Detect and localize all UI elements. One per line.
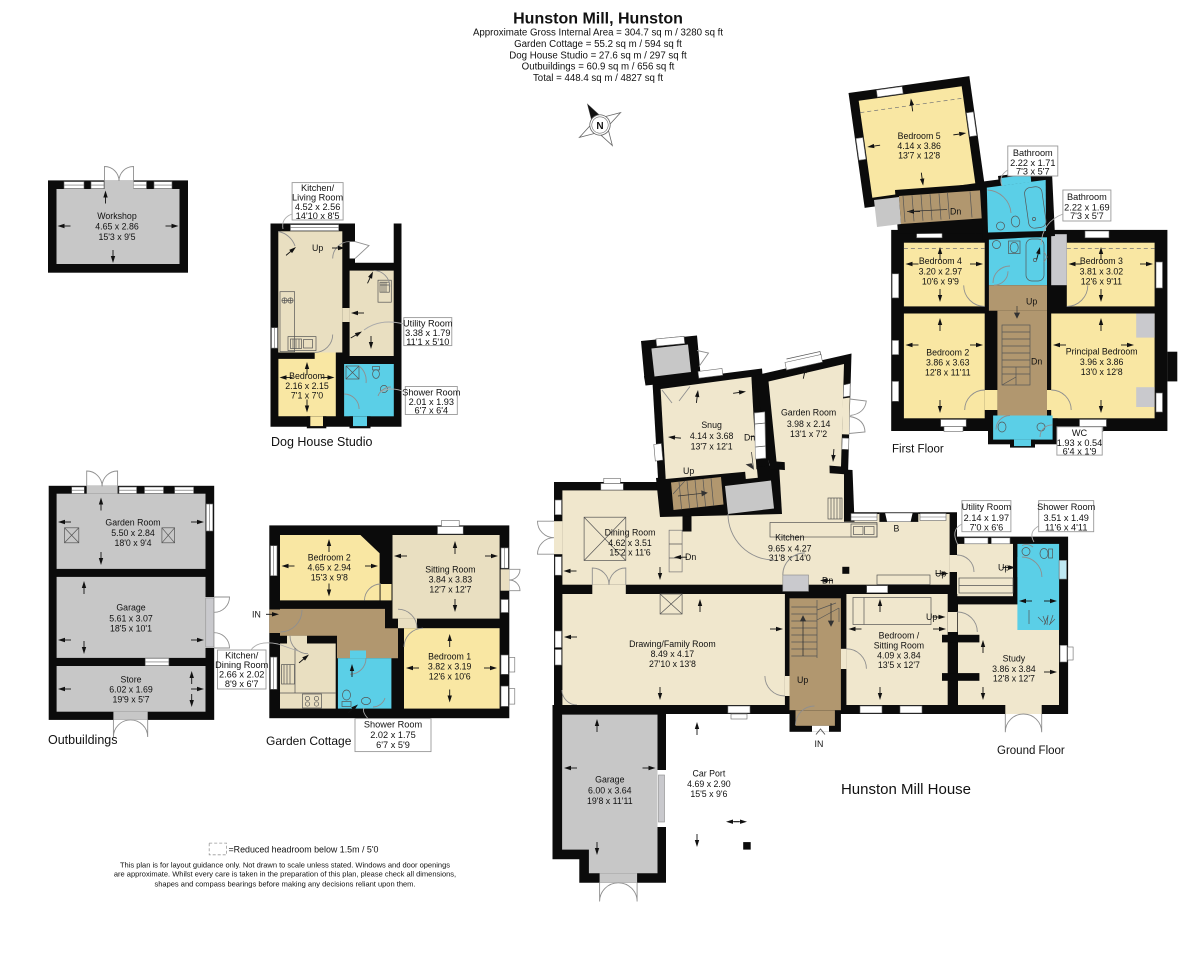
svg-text:Dn: Dn: [744, 433, 755, 443]
svg-text:6'4 x 1'9: 6'4 x 1'9: [1063, 446, 1097, 456]
svg-text:WC: WC: [1072, 428, 1088, 438]
svg-text:2.66 x 2.02: 2.66 x 2.02: [219, 670, 264, 680]
svg-text:Shower Room: Shower Room: [364, 720, 423, 730]
svg-text:18'5 x 10'1: 18'5 x 10'1: [110, 624, 152, 634]
svg-text:5.50 x 2.84: 5.50 x 2.84: [111, 528, 155, 538]
svg-text:13'1 x 7'2: 13'1 x 7'2: [790, 429, 827, 439]
svg-text:7'0 x 6'6: 7'0 x 6'6: [970, 522, 1004, 532]
svg-text:15'3 x 9'5: 15'3 x 9'5: [98, 232, 135, 242]
svg-text:15'2 x 11'6: 15'2 x 11'6: [609, 547, 650, 557]
svg-text:IN: IN: [252, 610, 261, 620]
svg-text:3.82 x 3.19: 3.82 x 3.19: [428, 662, 472, 672]
svg-text:Bedroom 2: Bedroom 2: [308, 553, 351, 563]
svg-text:11'1 x 5'10: 11'1 x 5'10: [406, 337, 449, 347]
svg-text:12'6 x 10'6: 12'6 x 10'6: [429, 672, 471, 682]
svg-text:13'0 x 12'8: 13'0 x 12'8: [1081, 367, 1123, 377]
svg-text:Car Port: Car Port: [693, 769, 726, 779]
svg-text:7'3 x 5'7: 7'3 x 5'7: [1070, 211, 1104, 221]
svg-text:B: B: [894, 524, 900, 534]
svg-text:Ground Floor: Ground Floor: [997, 745, 1065, 757]
svg-text:Up: Up: [312, 243, 323, 253]
svg-text:13'7 x 12'1: 13'7 x 12'1: [691, 441, 733, 451]
svg-text:6.00 x 3.64: 6.00 x 3.64: [588, 786, 632, 796]
svg-text:10'6 x 9'9: 10'6 x 9'9: [922, 276, 959, 286]
svg-text:3.81 x 3.02: 3.81 x 3.02: [1080, 266, 1124, 276]
svg-text:Dn: Dn: [950, 207, 961, 217]
svg-text:18'0 x 9'4: 18'0 x 9'4: [114, 538, 151, 548]
svg-text:Approximate Gross Internal Are: Approximate Gross Internal Area = 304.7 …: [473, 28, 723, 39]
svg-text:2.16 x 2.15: 2.16 x 2.15: [285, 381, 329, 391]
svg-text:4.09 x 3.84: 4.09 x 3.84: [877, 650, 921, 660]
svg-text:Dog House Studio = 27.6 sq m /: Dog House Studio = 27.6 sq m / 297 sq ft: [509, 50, 687, 61]
svg-text:Dog House Studio: Dog House Studio: [271, 435, 373, 449]
svg-text:12'8 x 12'7: 12'8 x 12'7: [993, 673, 1035, 683]
svg-text:Bedroom 3: Bedroom 3: [1080, 256, 1123, 266]
svg-text:3.86 x 3.63: 3.86 x 3.63: [926, 358, 970, 368]
svg-text:Workshop: Workshop: [97, 211, 137, 221]
svg-text:Bedroom 2: Bedroom 2: [926, 348, 969, 358]
svg-text:4.65 x 2.86: 4.65 x 2.86: [95, 222, 139, 232]
svg-text:12'6 x 9'11: 12'6 x 9'11: [1081, 276, 1122, 286]
svg-text:19'9 x 5'7: 19'9 x 5'7: [112, 695, 149, 705]
svg-text:12'7 x 12'7: 12'7 x 12'7: [429, 584, 471, 594]
svg-text:4.14 x 3.68: 4.14 x 3.68: [690, 431, 734, 441]
svg-text:Bedroom: Bedroom: [289, 371, 325, 381]
svg-text:Outbuildings = 60.9 sq m / 656: Outbuildings = 60.9 sq m / 656 sq ft: [522, 62, 675, 73]
svg-text:6'7 x 6'4: 6'7 x 6'4: [414, 406, 448, 416]
svg-text:27'10 x 13'8: 27'10 x 13'8: [649, 659, 696, 669]
svg-text:Sitting Room: Sitting Room: [874, 640, 924, 650]
svg-text:Hunston Mill, Hunston: Hunston Mill, Hunston: [513, 11, 683, 28]
svg-text:This plan is for layout guidan: This plan is for layout guidance only. N…: [120, 860, 450, 869]
svg-text:Bathroom: Bathroom: [1067, 192, 1107, 202]
svg-text:3.98 x 2.14: 3.98 x 2.14: [787, 419, 831, 429]
svg-text:4.65 x 2.94: 4.65 x 2.94: [308, 563, 352, 573]
svg-text:4.69 x 2.90: 4.69 x 2.90: [687, 779, 731, 789]
svg-text:19'8 x 11'11: 19'8 x 11'11: [587, 796, 633, 806]
svg-text:3.86 x 3.84: 3.86 x 3.84: [992, 664, 1036, 674]
svg-text:15'5 x 9'6: 15'5 x 9'6: [690, 789, 727, 799]
svg-text:Snug: Snug: [701, 420, 722, 430]
svg-text:6.02 x 1.69: 6.02 x 1.69: [109, 685, 153, 695]
svg-text:Shower Room: Shower Room: [1037, 502, 1096, 512]
svg-text:First Floor: First Floor: [892, 444, 944, 456]
svg-text:Utility Room: Utility Room: [962, 502, 1012, 512]
svg-text:3.84 x 3.83: 3.84 x 3.83: [429, 574, 473, 584]
svg-text:Shower Room: Shower Room: [402, 387, 461, 397]
svg-text:Store: Store: [120, 675, 141, 685]
svg-text:3.20 x 2.97: 3.20 x 2.97: [919, 266, 963, 276]
svg-text:Kitchen/: Kitchen/: [301, 183, 335, 193]
svg-text:Up: Up: [797, 675, 808, 685]
svg-text:4.14 x 3.86: 4.14 x 3.86: [897, 141, 941, 151]
svg-text:Study: Study: [1003, 654, 1026, 664]
svg-text:Bedroom /: Bedroom /: [879, 631, 920, 641]
svg-text:31'8 x 14'0: 31'8 x 14'0: [769, 553, 811, 563]
svg-text:Drawing/Family Room: Drawing/Family Room: [629, 639, 716, 649]
svg-text:Up: Up: [1026, 297, 1037, 307]
svg-text:Total = 448.4 sq m / 4827 sq f: Total = 448.4 sq m / 4827 sq ft: [533, 73, 663, 84]
svg-text:Dining Room: Dining Room: [215, 660, 268, 670]
svg-text:12'8 x 11'11: 12'8 x 11'11: [925, 368, 971, 378]
svg-text:14'10 x 8'5: 14'10 x 8'5: [296, 211, 340, 221]
svg-text:Garden Cottage: Garden Cottage: [266, 734, 352, 748]
svg-text:Kitchen: Kitchen: [775, 533, 804, 543]
svg-text:8.49 x 4.17: 8.49 x 4.17: [651, 649, 695, 659]
svg-text:15'3 x 9'8: 15'3 x 9'8: [311, 573, 348, 583]
svg-text:6'7 x 5'9: 6'7 x 5'9: [376, 740, 410, 750]
svg-text:8'9 x 6'7: 8'9 x 6'7: [225, 679, 259, 689]
svg-text:5.61 x 3.07: 5.61 x 3.07: [109, 614, 153, 624]
svg-text:Outbuildings: Outbuildings: [48, 733, 118, 747]
svg-text:Dining Room: Dining Room: [605, 528, 656, 538]
svg-text:Up: Up: [683, 466, 694, 476]
svg-text:Kitchen/: Kitchen/: [225, 651, 259, 661]
svg-text:7'1 x 7'0: 7'1 x 7'0: [291, 391, 323, 401]
svg-text:Bedroom 1: Bedroom 1: [428, 652, 471, 662]
svg-text:Bedroom 4: Bedroom 4: [919, 256, 962, 266]
svg-text:shapes and compass bearings be: shapes and compass bearings before makin…: [155, 879, 416, 888]
svg-text:IN: IN: [815, 739, 824, 749]
svg-text:=Reduced headroom below 1.5m /: =Reduced headroom below 1.5m / 5'0: [229, 844, 379, 854]
svg-text:4.62 x 3.51: 4.62 x 3.51: [608, 538, 652, 548]
svg-text:11'6 x 4'11: 11'6 x 4'11: [1045, 522, 1088, 532]
svg-text:Living Room: Living Room: [292, 193, 343, 203]
svg-text:Utility Room: Utility Room: [403, 319, 453, 329]
svg-text:Bathroom: Bathroom: [1013, 148, 1053, 158]
svg-text:7'3 x 5'7: 7'3 x 5'7: [1016, 167, 1050, 177]
svg-text:Garage: Garage: [116, 603, 145, 613]
svg-text:Bedroom 5: Bedroom 5: [898, 131, 941, 141]
svg-text:N: N: [596, 121, 603, 132]
svg-text:Garden Room: Garden Room: [781, 408, 836, 418]
svg-text:Dn: Dn: [1031, 357, 1042, 367]
svg-text:13'5 x 12'7: 13'5 x 12'7: [878, 660, 920, 670]
svg-text:are approximate. Whilst every: are approximate. Whilst every care is ta…: [114, 870, 456, 879]
svg-text:Garage: Garage: [595, 775, 624, 785]
svg-text:Garden Room: Garden Room: [105, 518, 160, 528]
svg-text:13'7 x 12'8: 13'7 x 12'8: [898, 150, 940, 160]
svg-text:Sitting Room: Sitting Room: [425, 564, 475, 574]
svg-text:Hunston Mill House: Hunston Mill House: [841, 781, 971, 798]
svg-text:Garden Cottage = 55.2 sq m / 5: Garden Cottage = 55.2 sq m / 594 sq ft: [514, 39, 682, 50]
svg-text:2.02 x 1.75: 2.02 x 1.75: [370, 730, 415, 740]
svg-text:Principal Bedroom: Principal Bedroom: [1066, 347, 1138, 357]
svg-text:3.96 x 3.86: 3.96 x 3.86: [1080, 357, 1124, 367]
